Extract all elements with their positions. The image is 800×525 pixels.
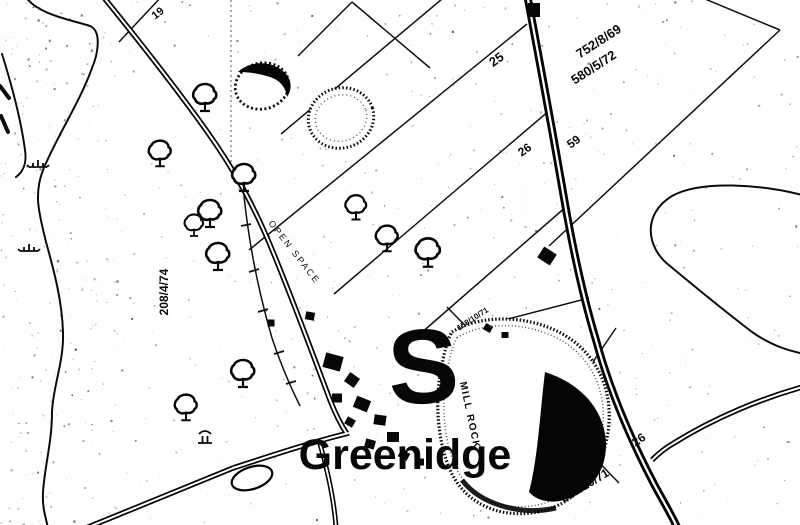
building-footprint (373, 414, 386, 426)
map-label-big-letter-s: S (385, 306, 462, 428)
map-label-settlement-name: Greenidge (299, 431, 512, 479)
building-footprint (528, 3, 540, 17)
building-footprint (332, 394, 342, 403)
map-canvas: 1925752/8/69580/5/722659208/4/74OPEN SPA… (0, 0, 800, 525)
building-footprint (305, 311, 315, 320)
map-label-ref-208-4-74: 208/4/74 (157, 268, 171, 315)
building-footprint (502, 332, 509, 338)
building-footprint (268, 320, 275, 327)
scanned-map-sheet: 1925752/8/69580/5/722659208/4/74OPEN SPA… (0, 0, 800, 525)
